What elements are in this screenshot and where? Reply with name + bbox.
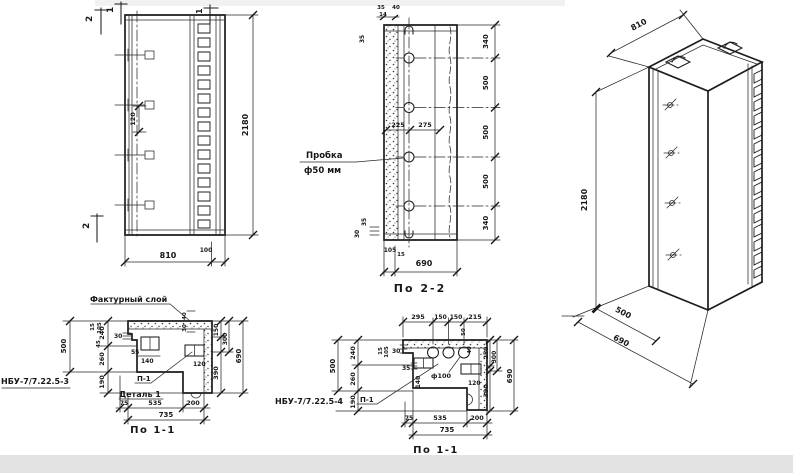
dim-690-label: 690 [235,349,243,364]
section-mark-2-bottom: 2 [82,223,92,229]
dim-depth-label: 500 [614,305,633,321]
dim-30-label: 30 [354,230,361,238]
dim-30-label: 30 [114,333,122,340]
drawing-canvas: 2 1 1 2 120 2180 810 100 35 14 40 35 340… [0,0,793,473]
dim-260-label: 260 [98,352,106,366]
dim-275-label: 275 [418,121,432,129]
dim-100-label: 100 [200,247,213,254]
dim-735-label: 735 [159,411,174,419]
dim-top-14: 14 [379,12,387,18]
dim-190-label: 190 [349,395,357,409]
callout-leaders [91,304,192,399]
dim-500-label: 500 [60,339,68,354]
dim-535-label: 535 [148,399,162,407]
section-2-2-view: 35 14 40 35 340 500 500 500 340 225 275 … [300,5,500,295]
dim-height-label: 2180 [241,113,250,136]
dim-390-label: 390 [482,384,490,398]
dim-left-35: 35 [359,35,366,43]
dim-140-label: 140 [141,358,154,365]
dim-right-500: 500 [482,174,490,189]
section-1-1-title: По 1-1 [413,445,459,456]
keyed-face-wavy-line [449,27,451,237]
dim-300-label: 300 [222,333,229,346]
axonometric-view: 810 2180 500 690 [562,10,762,388]
product-mark-3-label: НБУ-7/7.22.5-3 [1,377,69,386]
dim-535-label: 535 [433,414,447,422]
dim-250-label: 250 [483,347,490,360]
dim-right-500: 500 [482,75,490,90]
scan-noise-top [95,0,565,6]
plate-divisions [150,337,195,356]
elevation-dim-ticks [121,11,257,266]
dim-right-500: 500 [482,125,490,140]
dim-690-label: 690 [506,369,514,384]
texture-layer-label: Фактурный слой [90,295,167,304]
section-mark-2-top: 2 [85,16,95,22]
keyed-edge-blocks-3d [754,70,762,278]
dim-120-label: 120 [193,361,206,368]
dim-735-label: 735 [440,426,455,434]
section-mark-1-right: 1 [195,8,204,14]
section-mark-1-top: 1 [106,7,116,13]
hole-diameter-label: ф100 [431,372,451,380]
plug-mark-slashes [665,99,679,260]
p1-label: П-1 [137,375,151,383]
detail-dim-ticks [334,318,518,439]
dim-120-label: 120 [129,112,137,126]
dim-150-label: 150 [213,324,220,337]
dim-200-label: 200 [186,399,200,407]
dim-215-label: 215 [468,313,482,321]
dim-35-label: 35 [402,365,410,372]
dim-225-label: 225 [391,121,405,129]
dim-30-label: 30 [392,348,400,355]
dim-260-label: 260 [349,372,357,386]
dim-75-label: 75 [405,415,413,422]
dim-105-label: 105 [97,322,103,334]
dim-140-label: 140 [415,376,422,389]
dim-35-label: 35 [361,218,368,226]
plug-hole [443,347,454,358]
dim-300-label: 300 [491,351,498,364]
dim-15-label: 15 [90,323,96,331]
elevation-view: 2 1 1 2 120 2180 810 100 [82,2,258,266]
block-outline [649,39,762,310]
dim-690-label: 690 [416,259,433,268]
drawing-sheet: 2 1 1 2 120 2180 810 100 35 14 40 35 340… [0,0,793,473]
dim-40-label: 40 [182,312,188,320]
dim-105-label: 105 [384,247,397,254]
dim-50-label: 50 [461,328,467,336]
facing-layer-top [128,321,212,329]
dim-width-label: 810 [629,17,648,33]
dim-right-340: 340 [482,216,490,231]
detail-section-3-view: Фактурный слой НБУ-7/7.22.5-3 П-1 Деталь… [1,295,248,436]
p1-label: П-1 [360,396,374,404]
dim-150a-label: 150 [434,314,447,321]
dim-30b-label: 30 [182,324,188,332]
plug-mark-axes [663,105,681,255]
keyed-edge-blocks [198,24,210,228]
facing-layer-top [403,340,487,348]
detail-section-4-view: НБУ-7/7.22.5-4 П-1 ф100 295 150 150 215 … [275,313,518,456]
dim-top-35: 35 [377,5,385,11]
dim-75-label: 75 [120,400,128,407]
plug-callout-line2: ф50 мм [304,166,341,176]
dim-190-label: 190 [98,375,106,389]
block-face-lines [653,45,757,290]
dim-15-label: 15 [397,252,405,258]
scan-noise-bottom [0,455,793,473]
dim-width-label: 810 [160,251,177,260]
dim-total-depth-label: 690 [612,333,631,349]
detail-1-label: Деталь 1 [119,390,161,399]
section-2-2-title: По 2-2 [394,282,446,295]
dim-390-label: 390 [212,366,220,380]
anchor-marks [115,49,154,211]
product-mark-4-label: НБУ-7/7.22.5-4 [275,397,343,406]
dim-200-label: 200 [470,414,484,422]
dim-240-label: 240 [349,346,357,360]
dim-105-label: 105 [384,346,390,358]
dim-height-label: 2180 [580,188,589,211]
dim-150b-label: 150 [450,314,463,321]
dim-top-40: 40 [392,5,400,11]
dim-120-label: 120 [468,380,481,387]
dim-40-label: 40 [467,346,473,354]
section-1-1-title: По 1-1 [130,425,176,436]
facing-layer-band [384,25,398,240]
plug-hole [428,347,439,358]
plug-callout-line1: Пробка [306,150,343,161]
dim-55-label: 55 [131,349,139,356]
dim-295-label: 295 [411,313,425,321]
dim-500-label: 500 [329,359,337,374]
dim-45-label: 45 [96,340,102,348]
dim-right-340: 340 [482,34,490,49]
